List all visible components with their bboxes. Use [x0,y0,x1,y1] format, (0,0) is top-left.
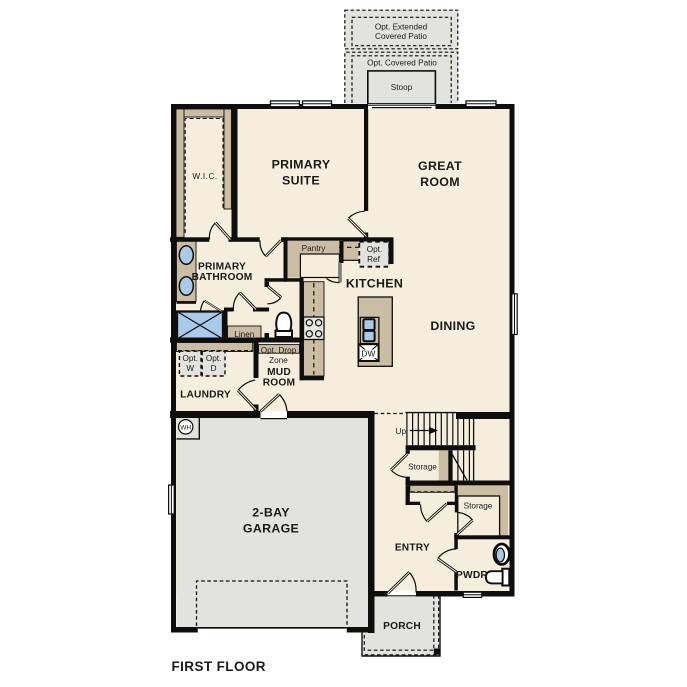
svg-text:Stoop: Stoop [391,83,413,92]
svg-text:PRIMARY: PRIMARY [272,158,331,172]
svg-text:GREAT: GREAT [418,159,462,173]
svg-text:W: W [186,364,194,373]
svg-text:MUD: MUD [267,367,291,378]
svg-text:SUITE: SUITE [282,174,320,188]
svg-text:Opt.: Opt. [367,245,382,254]
svg-text:PORCH: PORCH [383,621,421,632]
svg-text:Opt. Extended: Opt. Extended [375,23,428,32]
svg-text:Opt. Covered Patio: Opt. Covered Patio [367,59,437,68]
svg-text:ENTRY: ENTRY [395,543,430,554]
svg-text:PRIMARY: PRIMARY [198,261,246,272]
svg-text:WH: WH [180,424,191,431]
svg-text:Covered Patio: Covered Patio [375,32,427,41]
svg-text:Opt.: Opt. [206,354,221,363]
svg-text:LAUNDRY: LAUNDRY [180,390,231,401]
svg-text:Opt.: Opt. [182,354,197,363]
svg-text:D: D [211,364,217,373]
svg-text:Linen: Linen [234,330,254,339]
svg-text:PWDR: PWDR [456,570,488,581]
svg-text:GARAGE: GARAGE [243,521,299,535]
svg-text:Up: Up [396,427,407,436]
svg-text:Opt. Drop: Opt. Drop [261,346,297,355]
svg-text:Zone: Zone [269,356,288,365]
svg-text:Storage: Storage [408,463,437,472]
svg-text:FIRST FLOOR: FIRST FLOOR [172,659,266,674]
svg-text:Ref: Ref [367,255,380,264]
svg-text:DINING: DINING [430,319,475,333]
svg-text:Storage: Storage [464,502,493,511]
svg-text:BATHROOM: BATHROOM [192,272,253,283]
svg-text:W.I.C.: W.I.C. [192,172,217,181]
svg-text:Pantry: Pantry [302,244,327,253]
svg-text:ROOM: ROOM [263,377,296,388]
svg-text:2-BAY: 2-BAY [252,505,290,519]
svg-text:KITCHEN: KITCHEN [346,277,403,291]
svg-text:ROOM: ROOM [420,175,460,189]
svg-text:DW: DW [361,348,375,358]
